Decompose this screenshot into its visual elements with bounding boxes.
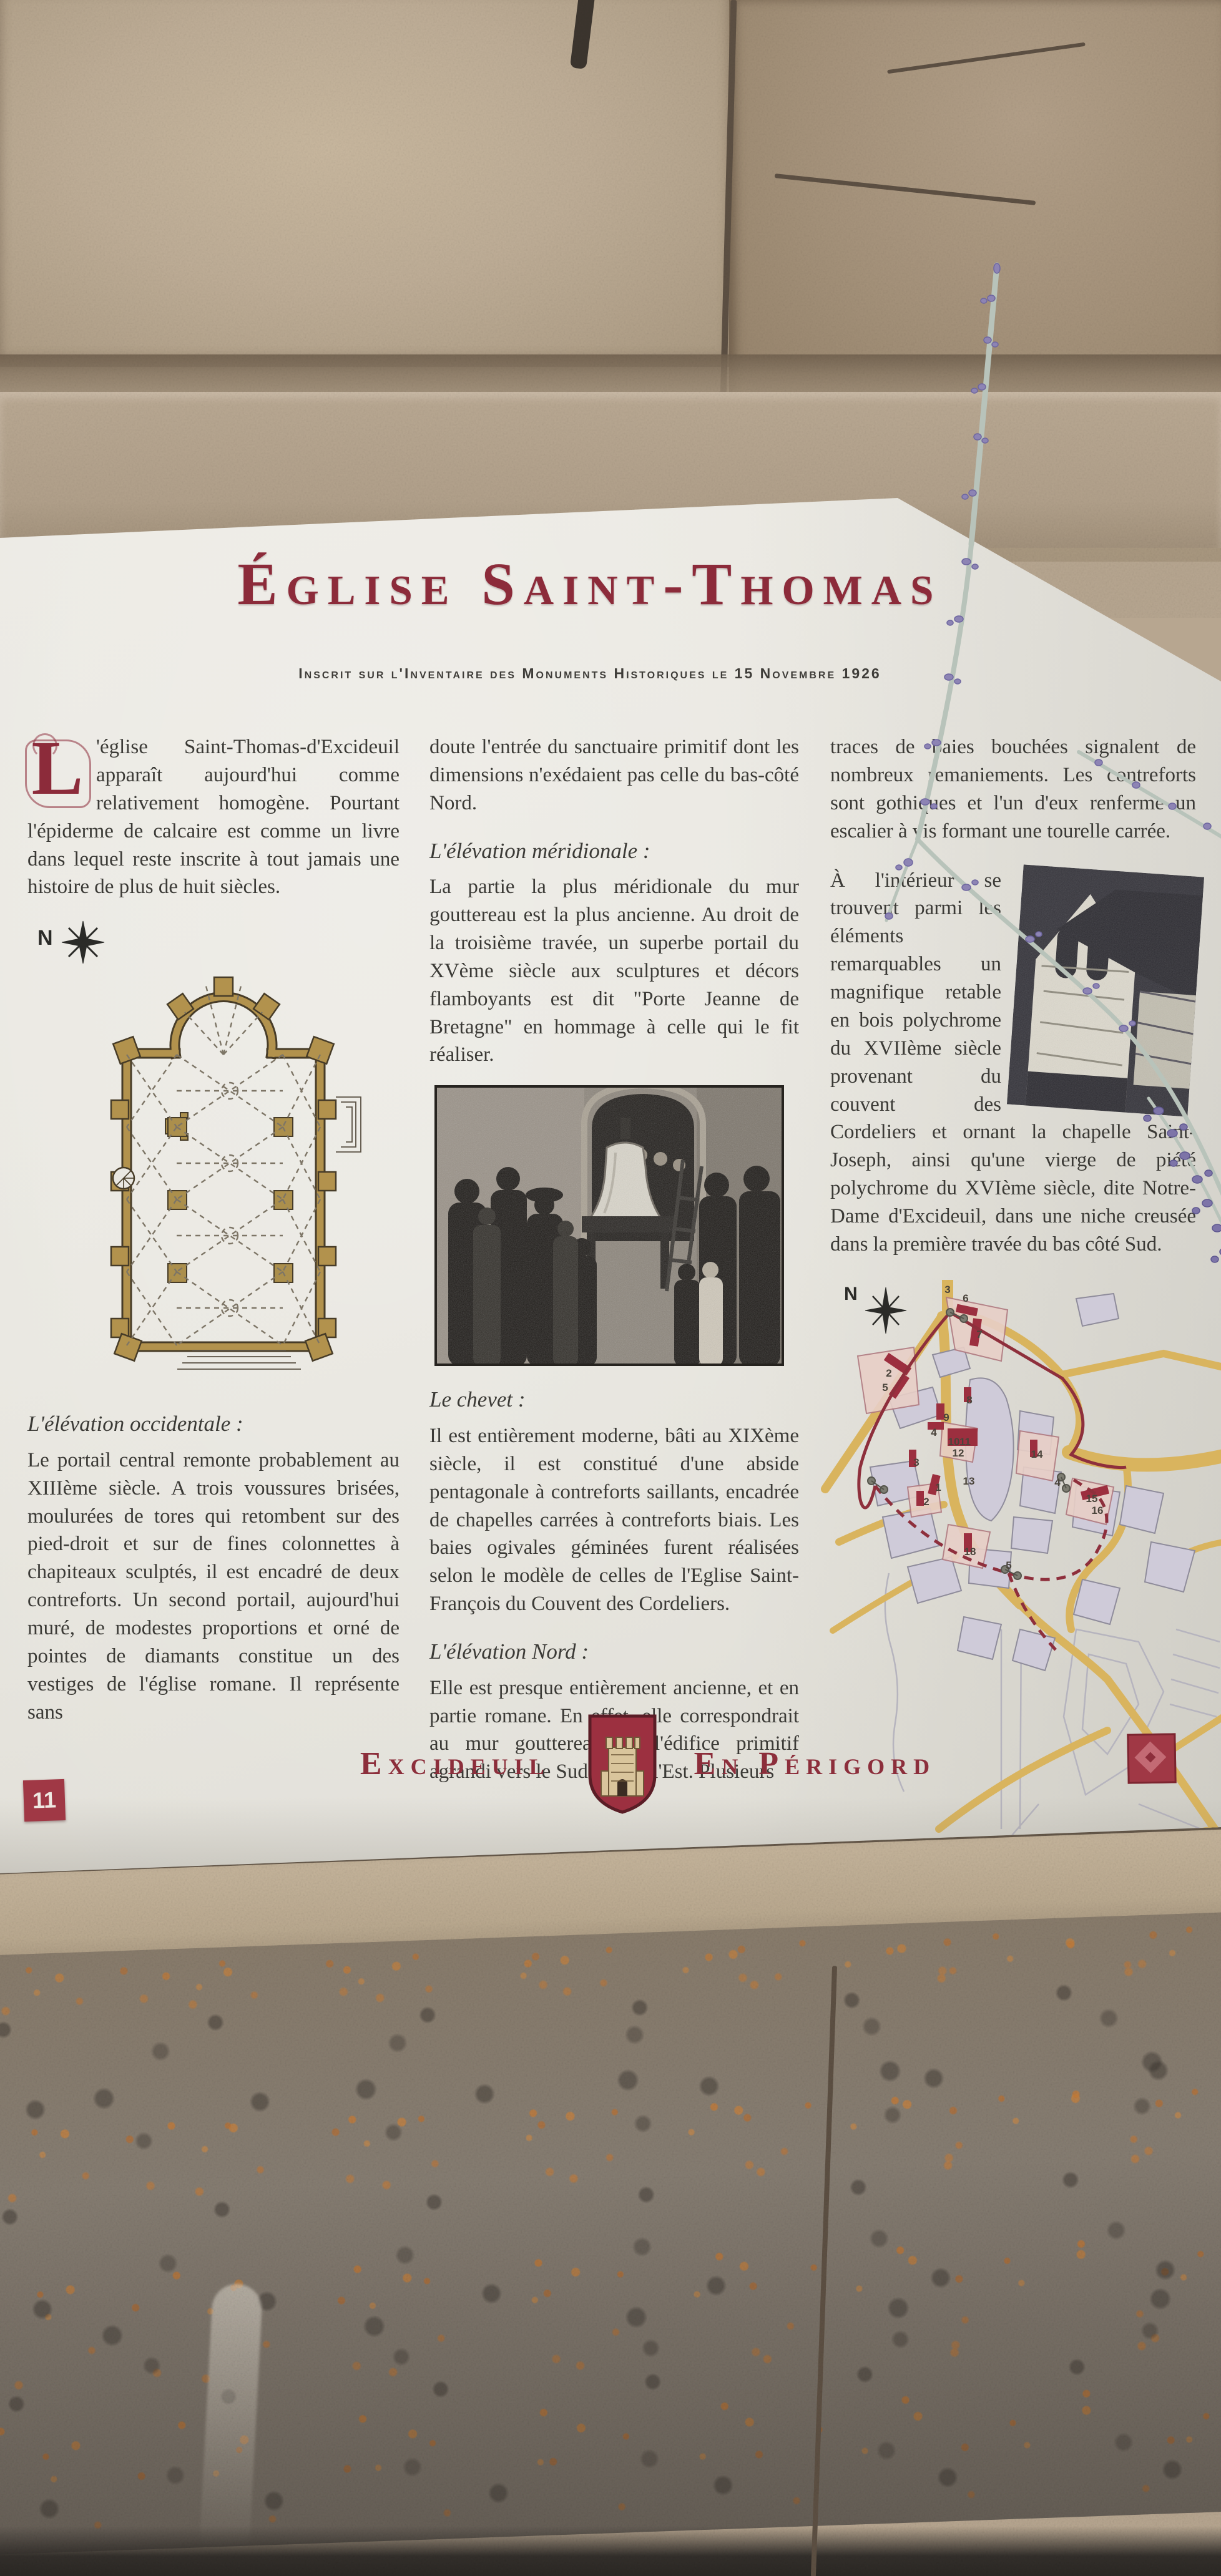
town-name: Excideuil	[360, 1745, 551, 1782]
photo-of-heritage-sign: Église Saint-Thomas Inscrit sur l'Invent…	[0, 0, 1221, 2576]
section-heading: L'élévation méridionale :	[429, 836, 799, 866]
intro-paragraph: L'église Saint-Thomas-d'Excideuil appara…	[27, 733, 400, 901]
map-marker: 8	[966, 1394, 972, 1407]
engraving-figure	[1007, 864, 1204, 1116]
region-name: En Périgord	[694, 1745, 936, 1782]
paragraph: Le portail central remonte probablement …	[27, 1447, 400, 1727]
compass-icon: N	[844, 1284, 908, 1337]
bell-photo-figure	[434, 1085, 784, 1366]
panel-number-badge: 11	[23, 1779, 66, 1822]
map-marker: 10	[948, 1436, 960, 1448]
spiral-stair	[113, 1168, 134, 1189]
paragraph: traces de baies bouchées signalent de no…	[830, 733, 1196, 846]
historic-bell-photo	[434, 1085, 784, 1366]
map-marker: 3	[913, 1456, 919, 1469]
map-marker: 13	[963, 1475, 975, 1488]
map-marker: 4	[1054, 1476, 1060, 1489]
map-marker: 16	[1092, 1505, 1104, 1517]
map-marker: 18	[964, 1546, 976, 1558]
map-marker: 5	[882, 1382, 888, 1394]
svg-text:N: N	[37, 926, 53, 950]
paragraph: La partie la plus méridionale du mur gou…	[429, 873, 799, 1069]
page-subtitle: Inscrit sur l'Inventaire des Monuments H…	[137, 665, 1042, 682]
church-tower-engraving	[1007, 864, 1204, 1116]
map-marker: 4	[931, 1427, 936, 1439]
decorative-ornament	[1127, 1733, 1176, 1783]
map-marker: 14	[1031, 1448, 1043, 1461]
column-middle: doute l'entrée du sanctuaire primitif do…	[429, 733, 799, 1786]
map-marker: 6	[963, 1292, 968, 1305]
paragraph: doute l'entrée du sanctuaire primitif do…	[429, 733, 799, 817]
page-title: Église Saint-Thomas	[75, 549, 1105, 618]
paragraph: Il est entièrement moderne, bâti au XIXè…	[429, 1422, 799, 1618]
map-marker: 7	[976, 1329, 982, 1341]
church-floor-plan: N	[24, 910, 373, 1390]
map-marker: 5	[1006, 1559, 1011, 1572]
map-marker: 2	[886, 1367, 891, 1380]
section-heading: Le chevet :	[429, 1385, 799, 1415]
map-marker: 1	[935, 1481, 941, 1494]
ornate-dropcap: L	[27, 738, 87, 806]
footer-banner: Excideuil En Périgord	[0, 1711, 1221, 1816]
map-marker: 3	[944, 1284, 950, 1296]
section-heading: L'élévation occidentale :	[27, 1409, 400, 1439]
column-right: traces de baies bouchées signalent de no…	[830, 733, 1196, 1854]
shield-icon	[585, 1711, 660, 1816]
map-marker: 9	[943, 1412, 949, 1424]
compass-icon: N	[37, 921, 104, 964]
map-marker: 2	[923, 1496, 929, 1508]
map-marker: 11	[959, 1436, 971, 1448]
section-heading: L'élévation Nord :	[429, 1637, 799, 1667]
floor-plan-figure: N	[24, 910, 373, 1390]
wrapped-paragraph-block: À l'intérieur se trouvent parmi les élém…	[830, 867, 1196, 1259]
map-marker: 12	[953, 1447, 964, 1460]
column-left: L'église Saint-Thomas-d'Excideuil appara…	[27, 733, 400, 1727]
map-marker: 15	[1086, 1493, 1098, 1505]
